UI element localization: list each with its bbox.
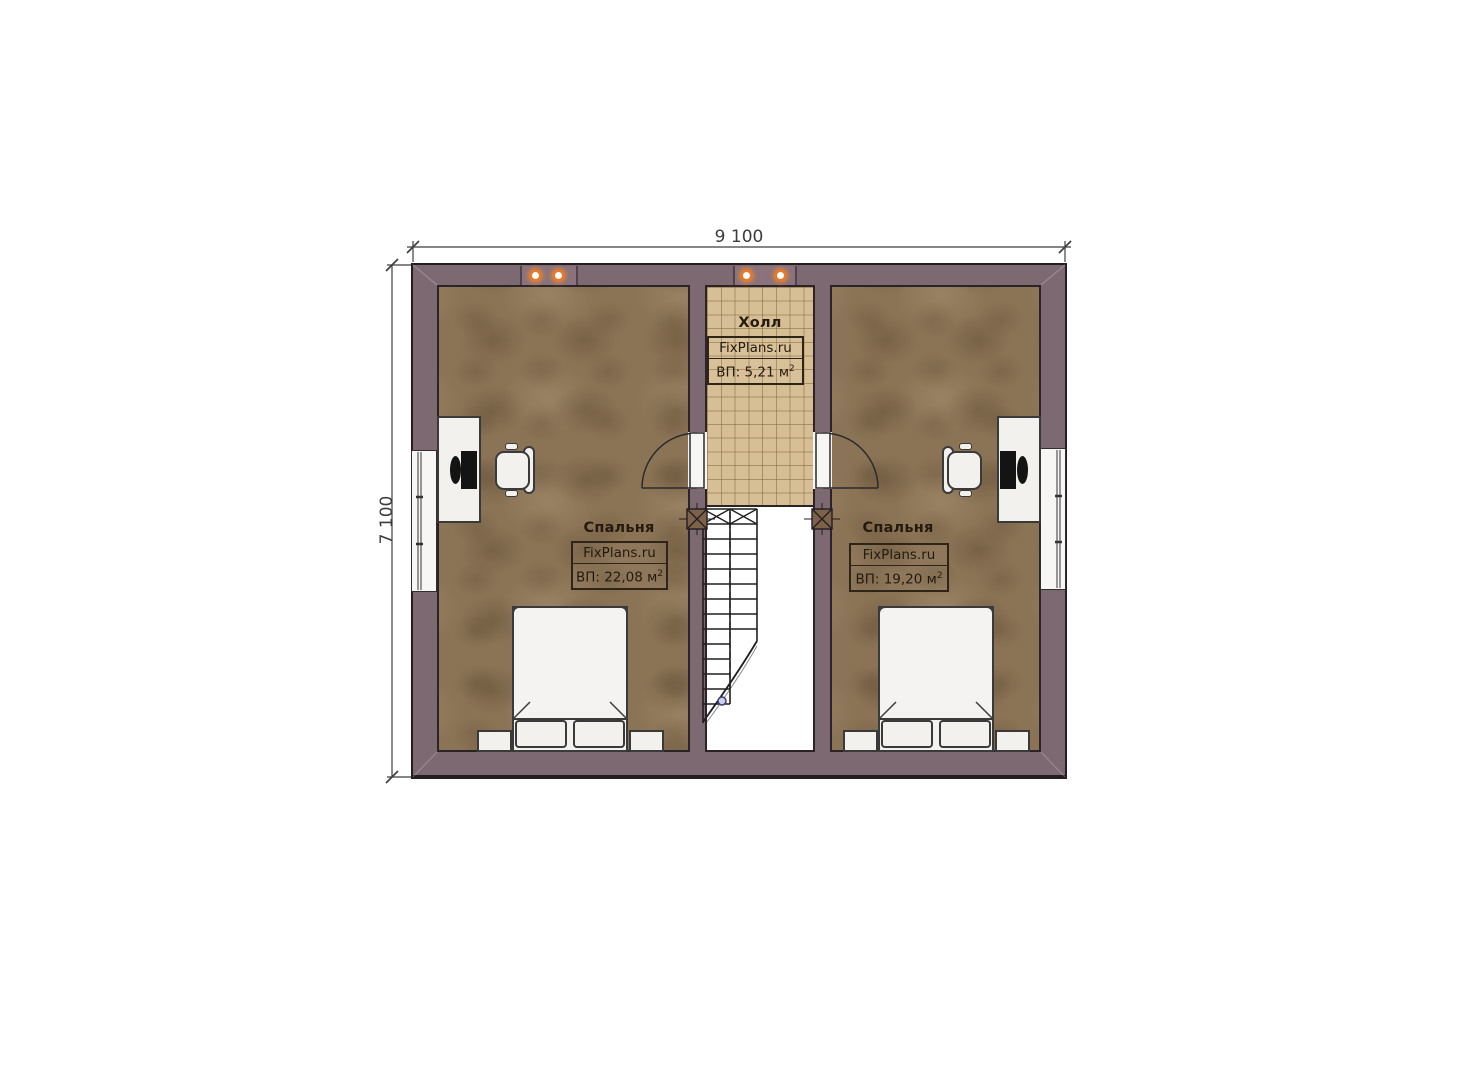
monitor-stand-icon [1017,456,1028,484]
room-area-label: ВП: 5,21 м2 [709,359,802,383]
pillow [515,720,567,748]
ceiling-light-icon [552,269,565,282]
nightstand [629,730,664,752]
office-chair-right [947,451,982,490]
monitor-stand-icon [450,456,461,484]
bed-blanket [512,606,628,720]
room-name-bedroom-left: Спальня [562,520,676,536]
door-opening-right [813,432,832,489]
chair-armrest [505,490,518,497]
floor-plan-canvas: 9 100 7 100 Холл FixPlans.ru ВП: 5,21 м2… [0,0,1473,1080]
room-name-bedroom-right: Спальня [841,520,955,536]
ceiling-light-icon [774,269,787,282]
brand-watermark: FixPlans.ru [851,545,947,566]
computer-monitor-icon [1000,451,1016,489]
chair-armrest [959,490,972,497]
nightstand [477,730,512,752]
pillow [881,720,933,748]
window-right [1040,448,1066,590]
nightstand [995,730,1030,752]
dimension-width-label: 9 100 [689,227,789,247]
door-opening-left [688,432,707,489]
pillow [573,720,625,748]
stairwell-floor [705,507,815,752]
office-chair-left [495,451,530,490]
ceiling-light-icon [529,269,542,282]
room-info-box-bedroom-left: FixPlans.ru ВП: 22,08 м2 [571,541,668,590]
computer-monitor-icon [461,451,477,489]
brand-watermark: FixPlans.ru [709,338,802,359]
bed-blanket [878,606,994,720]
room-name-hall: Холл [705,315,815,331]
ceiling-light-icon [740,269,753,282]
room-info-box-hall: FixPlans.ru ВП: 5,21 м2 [707,336,804,385]
room-info-box-bedroom-right: FixPlans.ru ВП: 19,20 м2 [849,543,949,592]
pillow [939,720,991,748]
nightstand [843,730,878,752]
chair-armrest [959,443,972,450]
chair-armrest [505,443,518,450]
room-area-label: ВП: 22,08 м2 [573,564,666,588]
window-left [411,450,437,592]
room-area-label: ВП: 19,20 м2 [851,566,947,590]
brand-watermark: FixPlans.ru [573,543,666,564]
dimension-height-label: 7 100 [377,470,395,570]
